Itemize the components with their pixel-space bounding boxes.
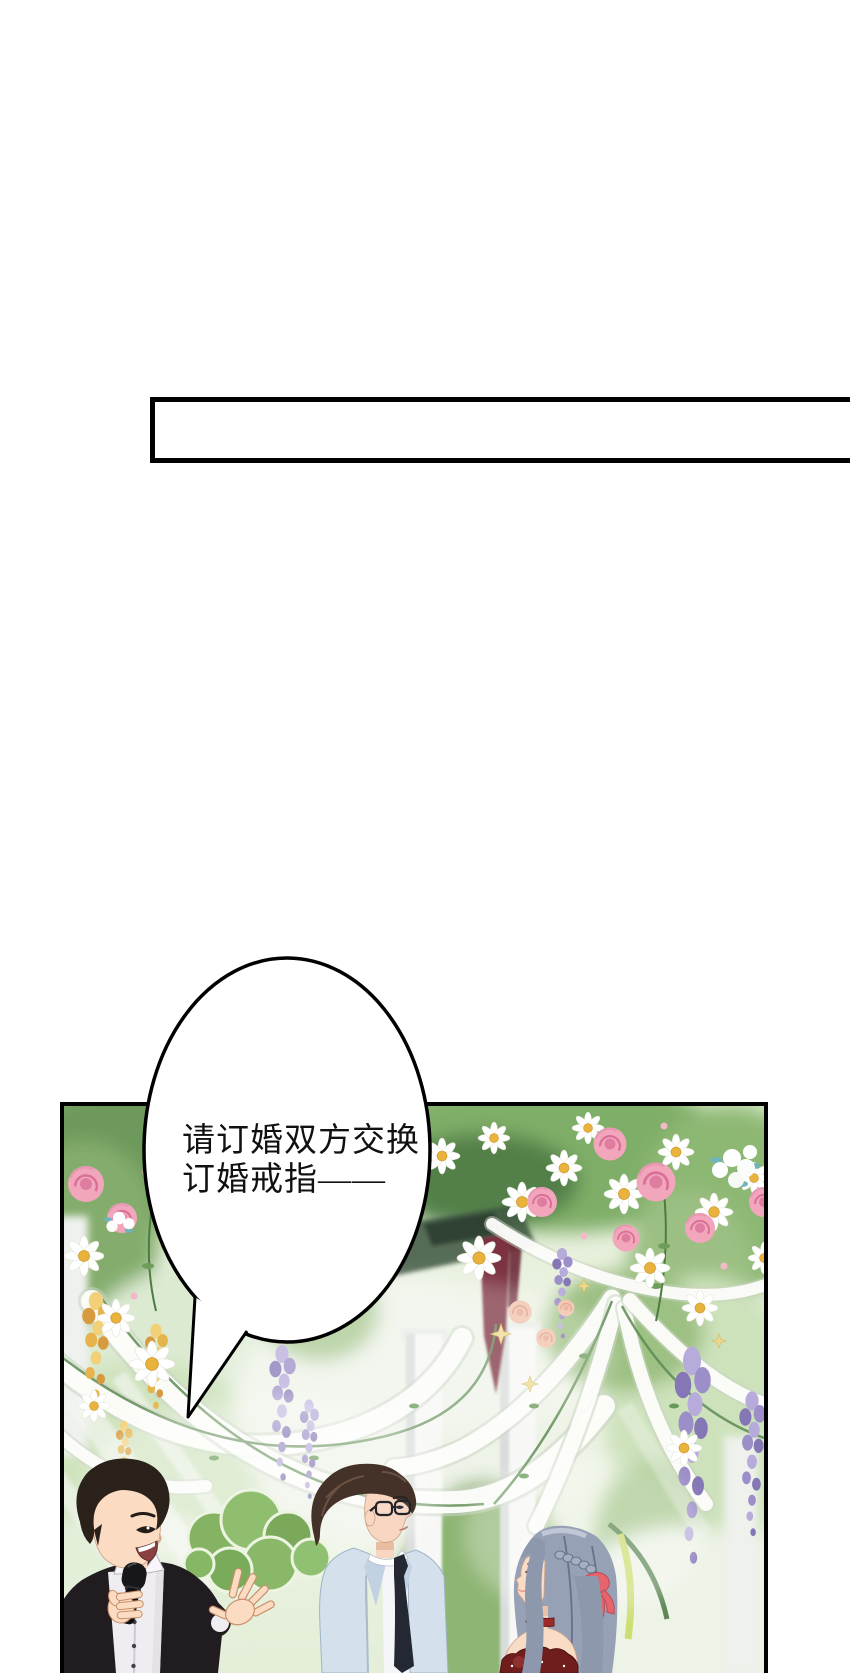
host-hand-on-mic xyxy=(107,1589,144,1623)
speech-line-2: 订婚戒指—— xyxy=(182,1161,432,1200)
speech-line-1: 请订婚双方交换 xyxy=(182,1122,432,1161)
speech-bubble-text: 请订婚双方交换 订婚戒指—— xyxy=(182,1122,432,1200)
top-empty-panel xyxy=(150,397,850,463)
glasses xyxy=(370,1501,410,1515)
comic-page: 请订婚双方交换 订婚戒指—— xyxy=(0,0,850,1673)
